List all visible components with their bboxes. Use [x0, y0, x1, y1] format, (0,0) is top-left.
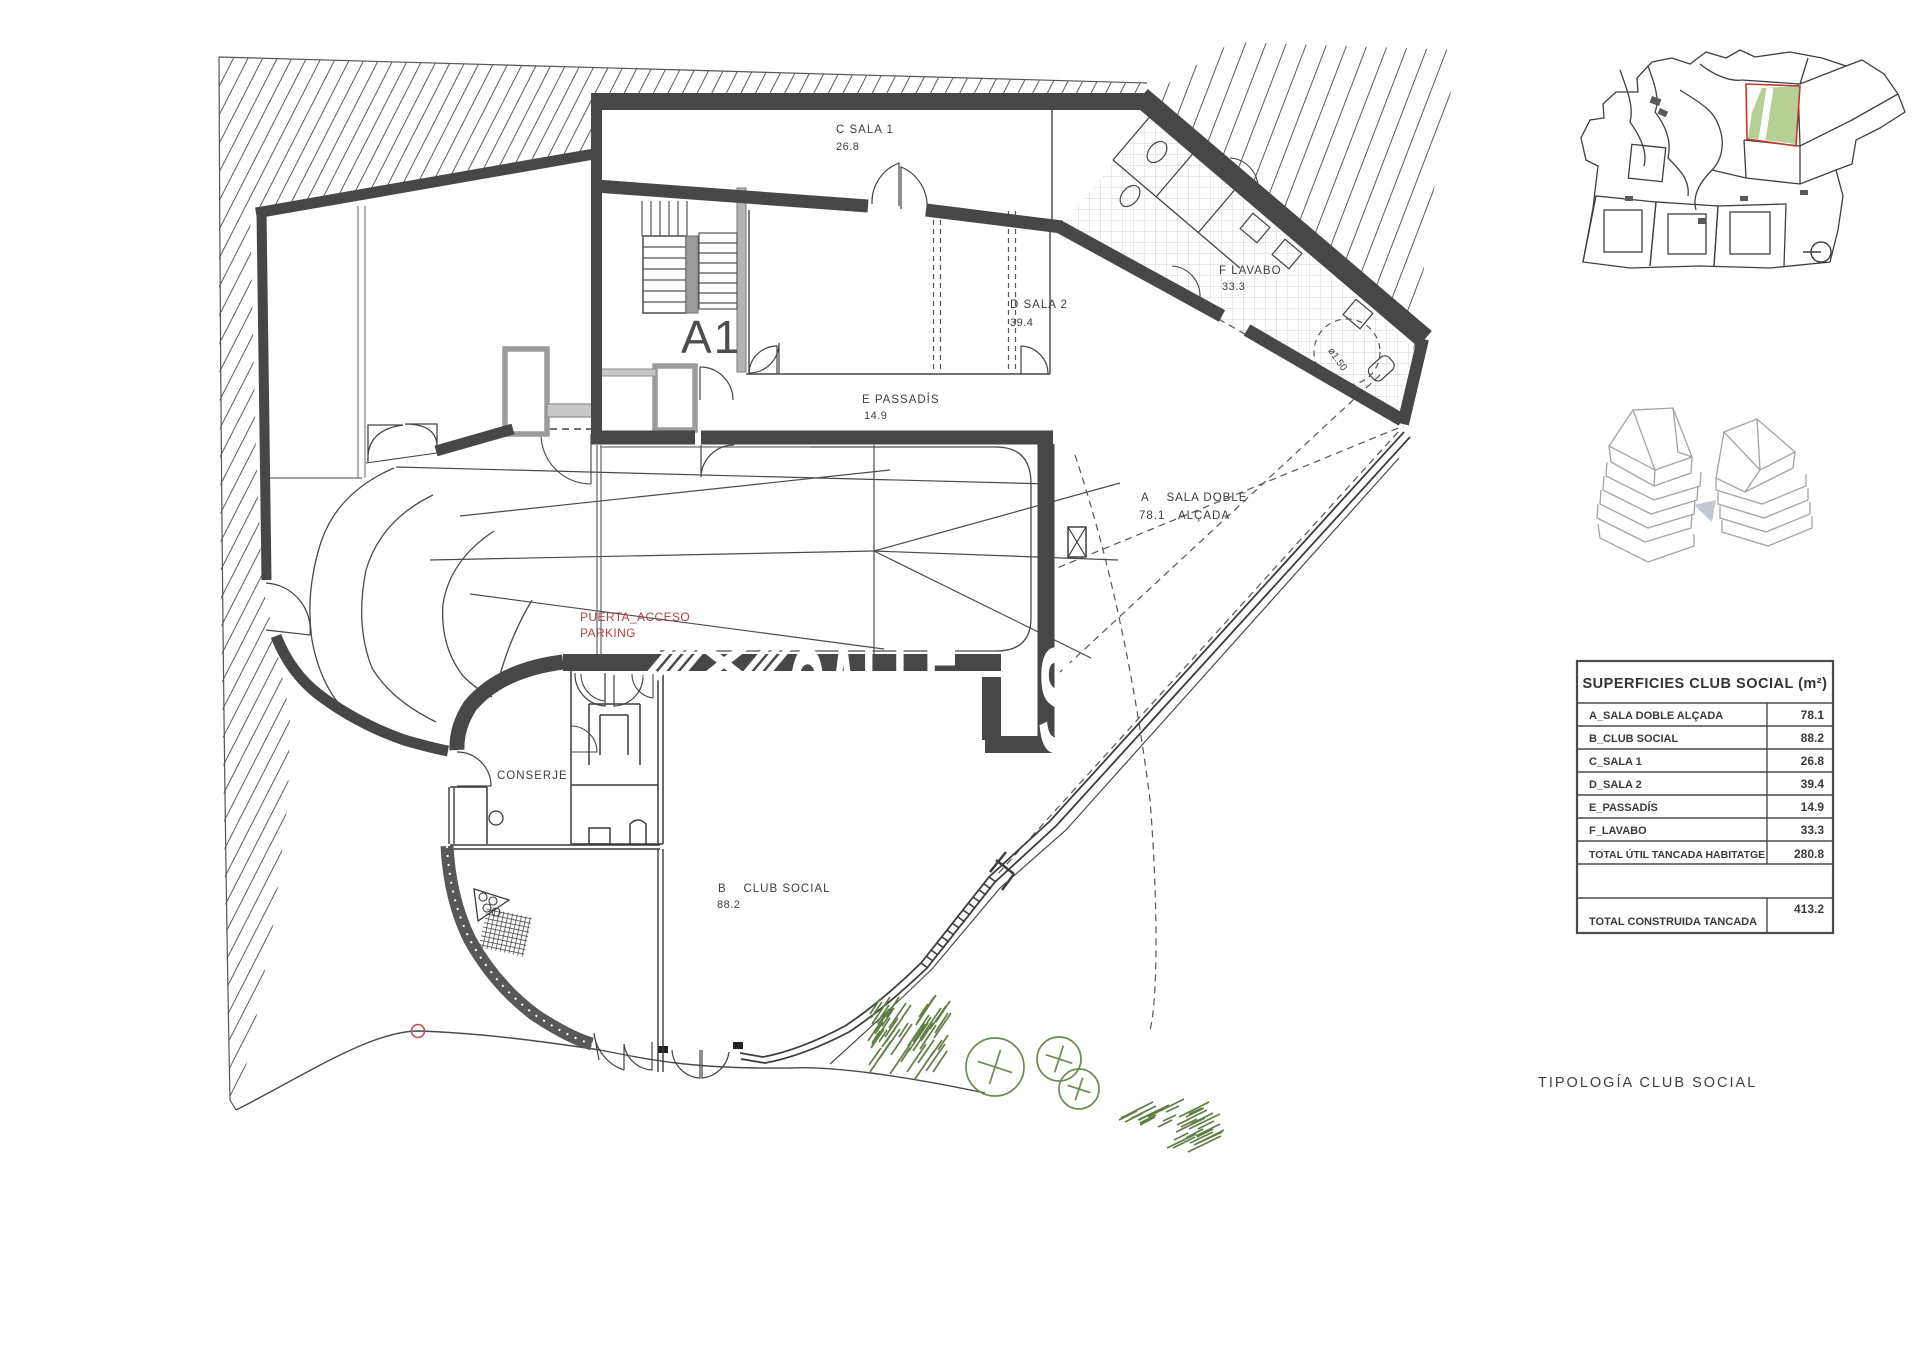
svg-text:88.2: 88.2	[1801, 731, 1825, 745]
svg-text:14.9: 14.9	[864, 410, 887, 422]
svg-text:C SALA 1: C SALA 1	[836, 124, 894, 136]
svg-text:B CLUB SOCIAL: B CLUB SOCIAL	[718, 883, 831, 895]
svg-text:C_SALA 1: C_SALA 1	[1589, 756, 1642, 768]
svg-text:26.8: 26.8	[836, 141, 859, 153]
svg-text:78.1: 78.1	[1801, 708, 1825, 722]
svg-text:A1: A1	[681, 311, 741, 363]
svg-text:14.9: 14.9	[1801, 800, 1825, 814]
svg-text:39.4: 39.4	[1010, 317, 1033, 329]
svg-text:TOTAL CONSTRUIDA TANCADA: TOTAL CONSTRUIDA TANCADA	[1589, 916, 1757, 928]
svg-text:A_SALA DOBLE ALÇADA: A_SALA DOBLE ALÇADA	[1589, 710, 1723, 722]
svg-text:88.2: 88.2	[717, 899, 740, 911]
svg-text:A SALA DOBLE: A SALA DOBLE	[1141, 492, 1247, 504]
svg-text:E_PASSADÍS: E_PASSADÍS	[1589, 801, 1658, 814]
svg-text:78.1 ALÇADA: 78.1 ALÇADA	[1139, 510, 1230, 522]
svg-text:D_SALA 2: D_SALA 2	[1589, 779, 1642, 791]
svg-text:F LAVABO: F LAVABO	[1219, 265, 1282, 277]
svg-text:CALLE: CALLE	[788, 616, 958, 784]
svg-text:TOTAL ÚTIL TANCADA HABITATGE: TOTAL ÚTIL TANCADA HABITATGE	[1589, 848, 1765, 861]
svg-text:CONSERJE: CONSERJE	[497, 770, 568, 782]
svg-text:33.3: 33.3	[1222, 281, 1245, 293]
svg-text:26.8: 26.8	[1801, 754, 1825, 768]
svg-text:PARKING: PARKING	[580, 626, 636, 640]
svg-text:33.3: 33.3	[1801, 823, 1825, 837]
svg-text:SUPERFICIES CLUB SOCIAL (m²): SUPERFICIES CLUB SOCIAL (m²)	[1583, 676, 1828, 692]
svg-text:S: S	[1038, 616, 1074, 784]
svg-text:280.8: 280.8	[1794, 847, 1824, 861]
svg-text:TIPOLOGÍA CLUB SOCIAL: TIPOLOGÍA CLUB SOCIAL	[1538, 1074, 1757, 1091]
svg-text:F_LAVABO: F_LAVABO	[1589, 825, 1647, 837]
svg-text:PUERTA_ACCESO: PUERTA_ACCESO	[580, 610, 690, 624]
svg-text:D SALA 2: D SALA 2	[1010, 299, 1068, 311]
svg-text:B_CLUB SOCIAL: B_CLUB SOCIAL	[1589, 733, 1679, 745]
svg-text:413.2: 413.2	[1794, 902, 1824, 916]
svg-text:39.4: 39.4	[1801, 777, 1825, 791]
svg-text:E PASSADÍS: E PASSADÍS	[862, 393, 940, 406]
